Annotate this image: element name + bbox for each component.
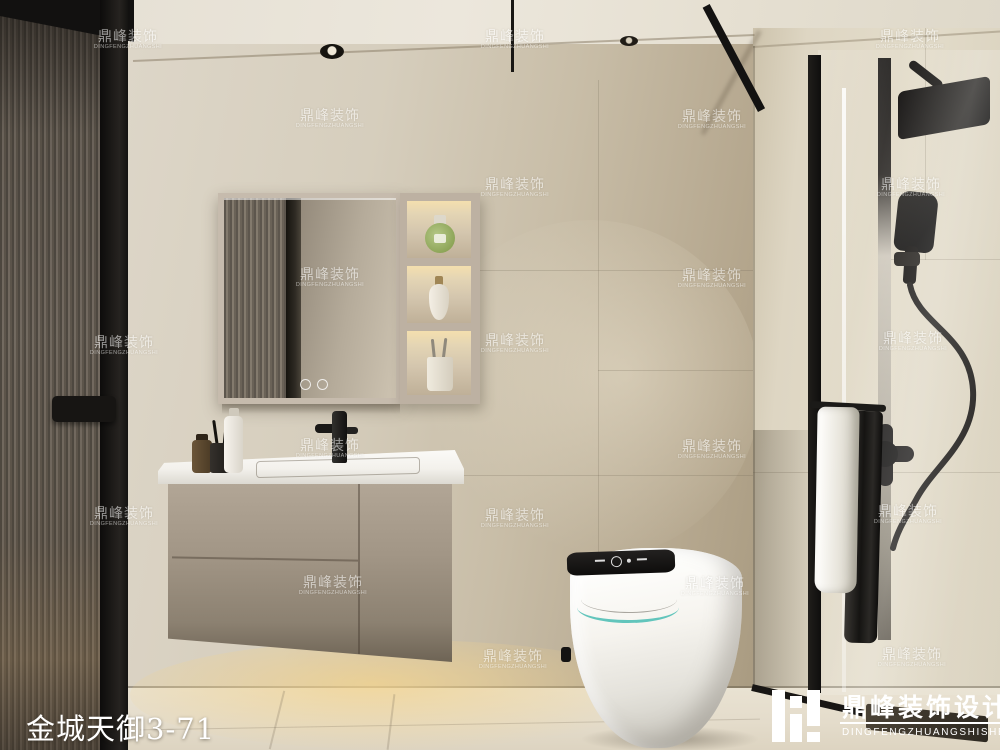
mirror-reflection-door-frame xyxy=(286,198,301,398)
black-basin-faucet xyxy=(332,411,347,463)
logo-bar xyxy=(772,690,785,742)
tile-joint xyxy=(450,475,753,476)
mirror-reflection-fluted-glass xyxy=(224,198,289,398)
brand-logo: 鼎峰装饰设计 DINGFENGZHUANGSHISHEJI xyxy=(770,686,1000,748)
brand-name-cn: 鼎峰装饰设计 xyxy=(842,688,1000,724)
mirror-reflection-wall xyxy=(301,198,396,398)
mirror-shadow xyxy=(222,404,400,414)
logo-bar xyxy=(807,690,820,726)
glass-frame-post xyxy=(808,55,821,693)
toilet-control-icons xyxy=(627,559,631,563)
recessed-downlight-icon xyxy=(620,36,638,46)
tile-joint xyxy=(598,370,753,371)
toothbrush-cup xyxy=(427,357,453,391)
mirror-light-touch-icon xyxy=(317,379,328,390)
logo-divider xyxy=(840,722,1000,724)
niche-shelf-middle xyxy=(407,266,471,323)
recessed-downlight-icon xyxy=(320,44,344,59)
mirror-defog-touch-icon xyxy=(300,379,311,390)
pendant-wire xyxy=(511,0,514,72)
vanity-cabinet xyxy=(168,482,452,662)
mirror-top-highlight xyxy=(224,198,396,200)
toilet-side-button xyxy=(561,647,571,662)
tile-joint xyxy=(450,270,753,271)
open-shelf-niche xyxy=(400,193,480,404)
brand-name-en: DINGFENGZHUANGSHISHEJI xyxy=(842,727,1000,738)
toilet-dial-icon xyxy=(611,556,622,567)
door-handle xyxy=(52,396,116,422)
logo-square xyxy=(807,732,820,742)
partition-frame-post xyxy=(100,0,128,750)
logo-bar xyxy=(790,714,802,742)
white-vase-bottle xyxy=(429,284,449,320)
toilet-control-icons xyxy=(595,560,605,562)
toilet-control-icons xyxy=(637,558,647,560)
door-seam xyxy=(358,482,360,654)
niche-shelf-top xyxy=(407,201,471,258)
project-title: 金城天御3-71 xyxy=(26,706,215,748)
white-towel xyxy=(814,407,859,594)
brand-logo-icon xyxy=(770,688,832,744)
toilet-teal-accent-line xyxy=(577,592,679,623)
fluted-glass-shading xyxy=(0,0,107,750)
white-pump-bottle xyxy=(224,416,243,473)
mirror xyxy=(224,198,396,398)
bathroom-render: 鼎峰装饰DINGFENGZHUANGSHI鼎峰装饰DINGFENGZHUANGS… xyxy=(0,0,1000,750)
perfume-label xyxy=(434,234,446,243)
niche-shelf-bottom xyxy=(407,331,471,395)
logo-square xyxy=(790,696,802,708)
amber-soap-bottle xyxy=(192,440,212,473)
toilet-control-panel xyxy=(567,549,676,576)
